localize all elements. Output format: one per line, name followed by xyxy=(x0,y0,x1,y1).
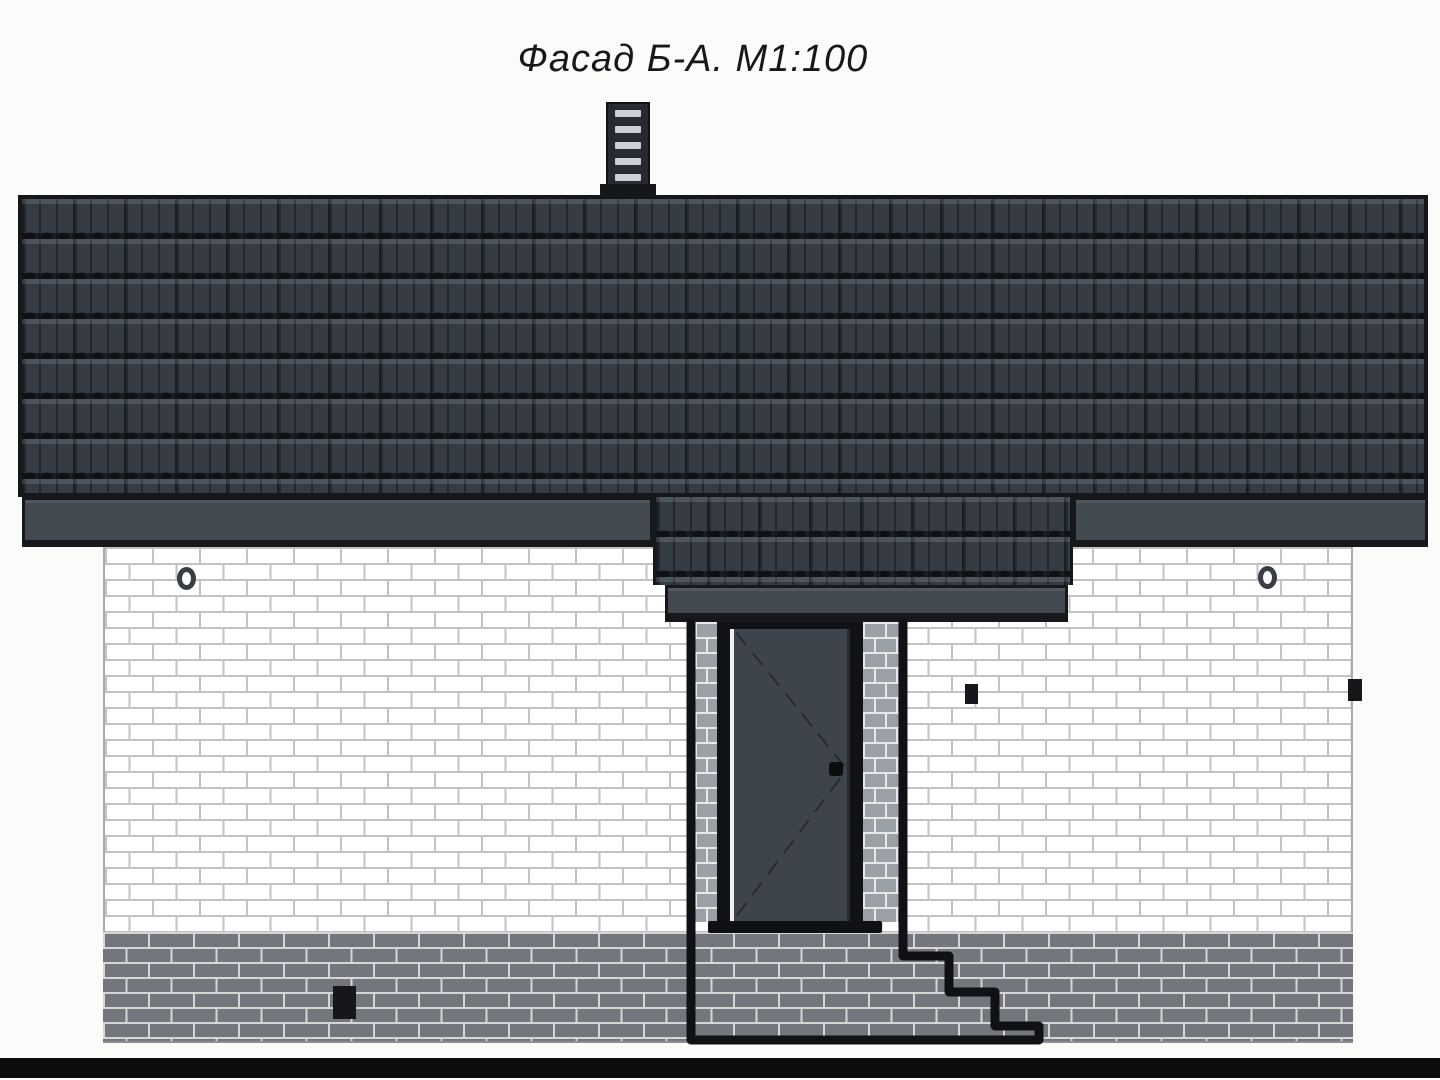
chimney xyxy=(606,102,650,196)
eave-fascia-left xyxy=(22,497,653,547)
porch-roof xyxy=(653,497,1073,585)
roof-main xyxy=(18,195,1428,497)
chimney-vent-slats xyxy=(615,110,641,190)
porch-pillar-right xyxy=(863,622,899,922)
round-vent-right-icon xyxy=(1258,566,1277,589)
square-vent-wall-edge-icon xyxy=(1348,679,1362,701)
door-frame-highlight xyxy=(730,629,734,921)
plinth-vent-icon xyxy=(333,986,356,1019)
drawing-title: Фасад Б-А. М1:100 xyxy=(0,38,1386,81)
porch-fascia xyxy=(665,585,1068,622)
entrance-door xyxy=(717,622,863,932)
door-handle-icon xyxy=(829,762,843,776)
chimney-slat xyxy=(615,110,641,117)
square-vent-wall-icon xyxy=(965,684,978,704)
round-vent-left-icon xyxy=(177,567,196,590)
eave-fascia-right xyxy=(1073,497,1428,547)
porch-pillar-left xyxy=(695,622,717,922)
chimney-slat xyxy=(615,142,641,149)
chimney-slat xyxy=(615,174,641,181)
facade-elevation-drawing: Фасад Б-А. М1:100 xyxy=(0,0,1440,1080)
plinth-gray-brick xyxy=(103,932,1353,1043)
door-sill xyxy=(708,921,882,933)
ground-line xyxy=(0,1058,1440,1078)
chimney-slat xyxy=(615,158,641,165)
chimney-slat xyxy=(615,126,641,133)
